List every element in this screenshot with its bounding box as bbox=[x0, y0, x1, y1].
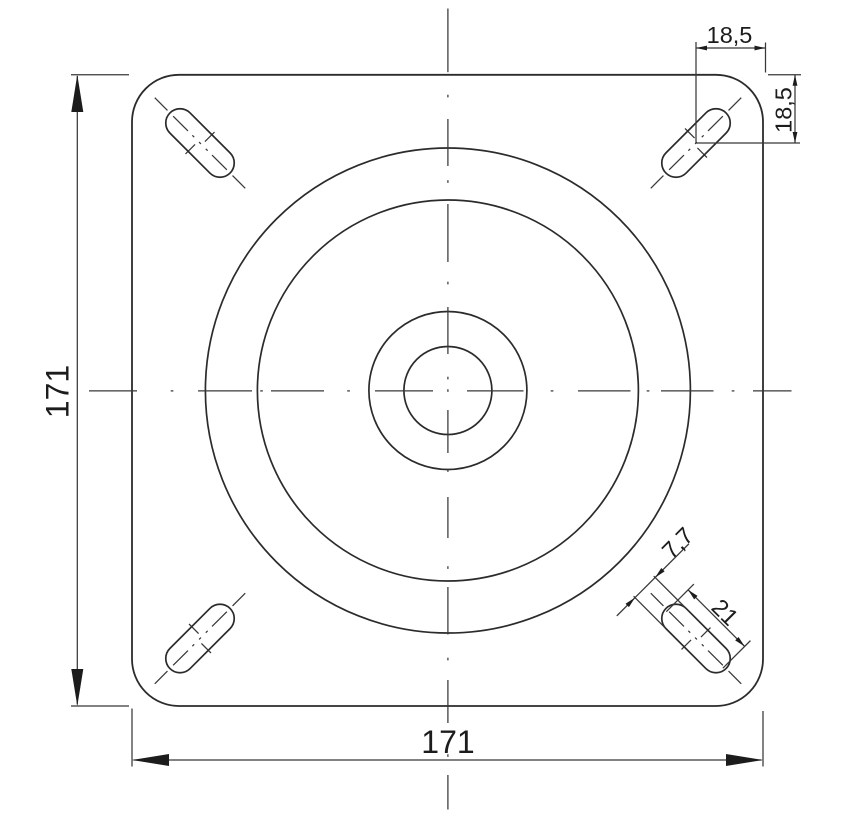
svg-text:18,5: 18,5 bbox=[707, 22, 753, 48]
svg-text:171: 171 bbox=[421, 724, 474, 760]
svg-text:171: 171 bbox=[40, 365, 76, 418]
svg-text:18,5: 18,5 bbox=[771, 87, 797, 133]
